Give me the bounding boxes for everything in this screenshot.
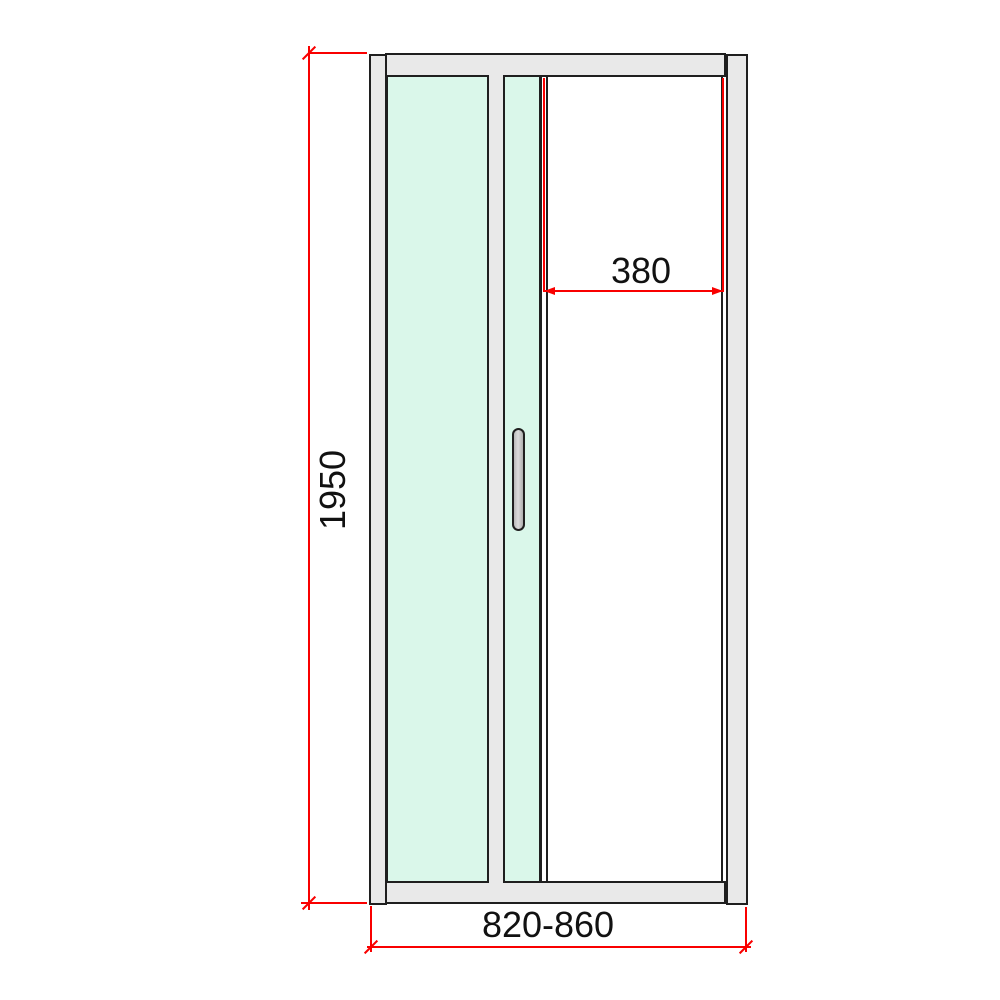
door-handle <box>512 428 525 531</box>
opening-dimension-right-arrow <box>712 287 723 295</box>
height-dimension-top-connector <box>308 52 367 54</box>
opening-dimension-right-extension <box>722 78 724 292</box>
height-dimension-line <box>308 46 310 910</box>
opening-dimension-left-arrow <box>544 287 555 295</box>
height-dimension-label: 1950 <box>315 450 351 530</box>
fixed-panel-left-edge-line <box>546 77 548 881</box>
width-dimension-label: 820-860 <box>482 907 614 943</box>
bottom-rail <box>385 881 726 904</box>
opening-dimension-left-extension <box>543 78 545 292</box>
glass-panel-left <box>386 75 489 883</box>
right-wall-profile <box>726 54 748 905</box>
left-wall-profile <box>369 54 387 905</box>
opening-dimension-label: 380 <box>611 253 671 289</box>
top-rail <box>385 53 726 77</box>
shower-door-drawing: 1950 380 820-860 <box>0 0 1000 1000</box>
width-dimension-line <box>367 946 751 948</box>
